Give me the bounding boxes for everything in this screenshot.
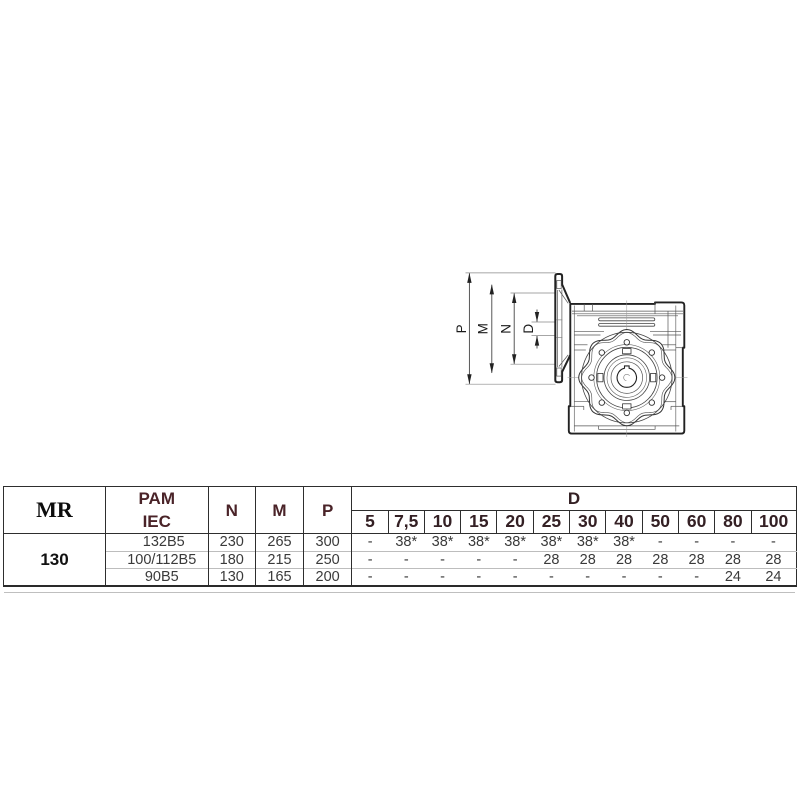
svg-text:P: P <box>454 324 469 333</box>
svg-text:N: N <box>498 324 513 334</box>
svg-text:D: D <box>521 324 536 334</box>
svg-text:M: M <box>475 323 490 334</box>
